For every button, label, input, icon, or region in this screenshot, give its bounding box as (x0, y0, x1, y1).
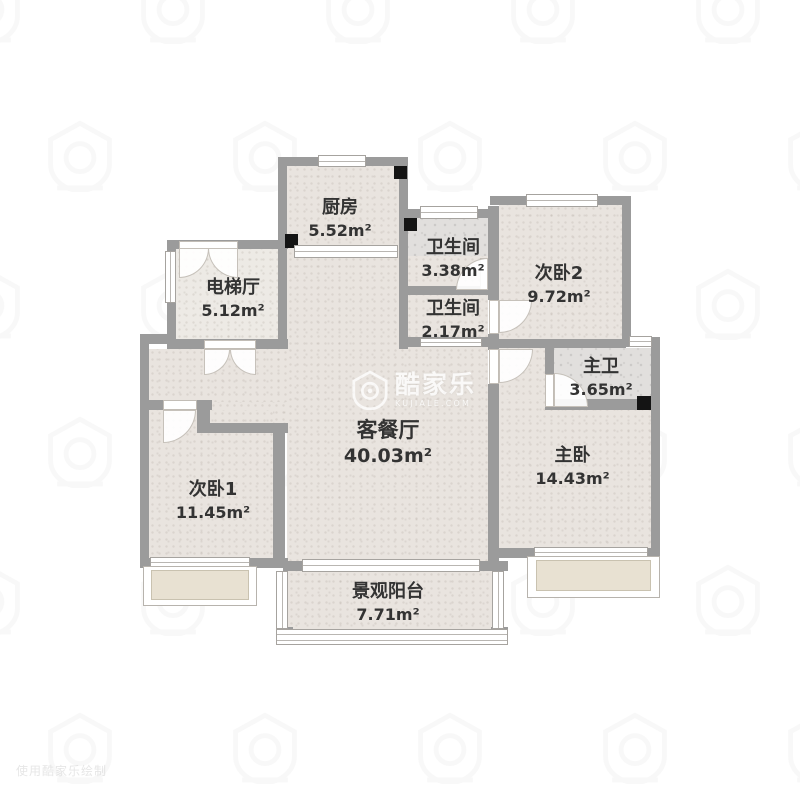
room-label-bathroom2: 卫生间 2.17m² (407, 297, 499, 343)
background-logo-tile (325, 0, 391, 44)
door-leaf (163, 400, 197, 410)
door-leaf (489, 349, 499, 384)
room-area: 3.65m² (548, 379, 654, 401)
kujiale-house-logo-icon (47, 416, 113, 488)
kujiale-house-logo-icon (695, 564, 761, 636)
room-name: 厨房 (280, 196, 400, 220)
wall (622, 196, 631, 347)
room-name: 卫生间 (407, 236, 499, 260)
background-logo-tile (787, 416, 800, 488)
window-pass-through (294, 245, 398, 258)
room-name: 主卧 (505, 444, 640, 468)
room-area: 2.17m² (407, 321, 499, 343)
background-logo-tile (602, 120, 668, 192)
background-logo-tile (417, 712, 483, 784)
pillar (394, 166, 407, 179)
background-logo-tile (47, 120, 113, 192)
room-name: 景观阳台 (308, 580, 468, 604)
bay-window (151, 570, 249, 600)
background-logo-tile (140, 0, 206, 44)
background-logo-tile (510, 0, 576, 44)
background-logo-tile (0, 564, 21, 636)
room-name: 电梯厅 (173, 276, 293, 300)
window-balcony-side (276, 571, 288, 629)
room-label-bedroom1: 次卧1 11.45m² (150, 478, 276, 524)
window (629, 336, 652, 347)
background-logo-tile (602, 712, 668, 784)
wall (140, 334, 149, 568)
background-logo-tile (0, 268, 21, 340)
background-logo-tile (232, 712, 298, 784)
room-area: 9.72m² (498, 286, 620, 308)
wall (488, 384, 499, 570)
wall (552, 339, 626, 348)
floorplan-canvas: 厨房 5.52m² 卫生间 3.38m² 卫生间 2.17m² 次卧2 9.72… (0, 0, 800, 800)
background-logo-tile (695, 564, 761, 636)
background-logo-tile (787, 712, 800, 784)
room-area: 5.12m² (173, 300, 293, 322)
window (526, 194, 598, 207)
kujiale-house-logo-icon (140, 0, 206, 44)
room-name: 次卧2 (498, 262, 620, 286)
background-logo-tile (0, 0, 21, 44)
kujiale-house-logo-icon (510, 0, 576, 44)
window (420, 206, 478, 219)
background-logo-tile (695, 268, 761, 340)
room-name: 次卧1 (150, 478, 276, 502)
kujiale-house-logo-icon (787, 712, 800, 784)
room-label-living-dining: 客餐厅 40.03m² (318, 416, 458, 470)
kujiale-house-logo-icon (602, 712, 668, 784)
room-label-master-bath: 主卫 3.65m² (548, 355, 654, 401)
kujiale-house-logo-icon (695, 0, 761, 44)
kujiale-house-logo-icon (695, 268, 761, 340)
background-logo-tile (47, 416, 113, 488)
room-label-kitchen: 厨房 5.52m² (280, 196, 400, 242)
room-area: 5.52m² (280, 220, 400, 242)
room-area: 3.38m² (407, 260, 499, 282)
room-area: 14.43m² (505, 468, 640, 490)
kujiale-house-logo-icon (0, 268, 21, 340)
kujiale-house-logo-icon (232, 712, 298, 784)
wall (499, 339, 557, 348)
window-balcony-side (492, 571, 504, 629)
window-balcony-rail (276, 629, 508, 645)
kujiale-house-logo-icon (0, 0, 21, 44)
background-logo-tile (695, 0, 761, 44)
window-balcony-slider (302, 559, 480, 572)
kujiale-house-logo-icon (417, 712, 483, 784)
kujiale-house-logo-icon (602, 120, 668, 192)
room-label-master-bedroom: 主卧 14.43m² (505, 444, 640, 490)
kujiale-house-logo-icon (787, 120, 800, 192)
background-logo-tile (417, 120, 483, 192)
room-label-balcony: 景观阳台 7.71m² (308, 580, 468, 626)
room-label-bathroom1: 卫生间 3.38m² (407, 236, 499, 282)
room-area: 40.03m² (318, 444, 458, 470)
room-label-bedroom2: 次卧2 9.72m² (498, 262, 620, 308)
room-name: 主卫 (548, 355, 654, 379)
bay-window (536, 560, 651, 591)
kujiale-house-logo-icon (417, 120, 483, 192)
kujiale-house-logo-icon (325, 0, 391, 44)
room-label-elevator-hall: 电梯厅 5.12m² (173, 276, 293, 322)
window (318, 155, 366, 167)
room-area: 7.71m² (308, 604, 468, 626)
kujiale-house-logo-icon (0, 564, 21, 636)
room-name: 卫生间 (407, 297, 499, 321)
background-logo-tile (787, 120, 800, 192)
room-name: 客餐厅 (318, 416, 458, 444)
door-leaf (204, 340, 256, 349)
kujiale-house-logo-icon (787, 416, 800, 488)
pillar (404, 218, 417, 231)
corner-watermark-text: 使用酷家乐绘制 (16, 762, 107, 779)
kujiale-house-logo-icon (47, 120, 113, 192)
room-area: 11.45m² (150, 502, 276, 524)
